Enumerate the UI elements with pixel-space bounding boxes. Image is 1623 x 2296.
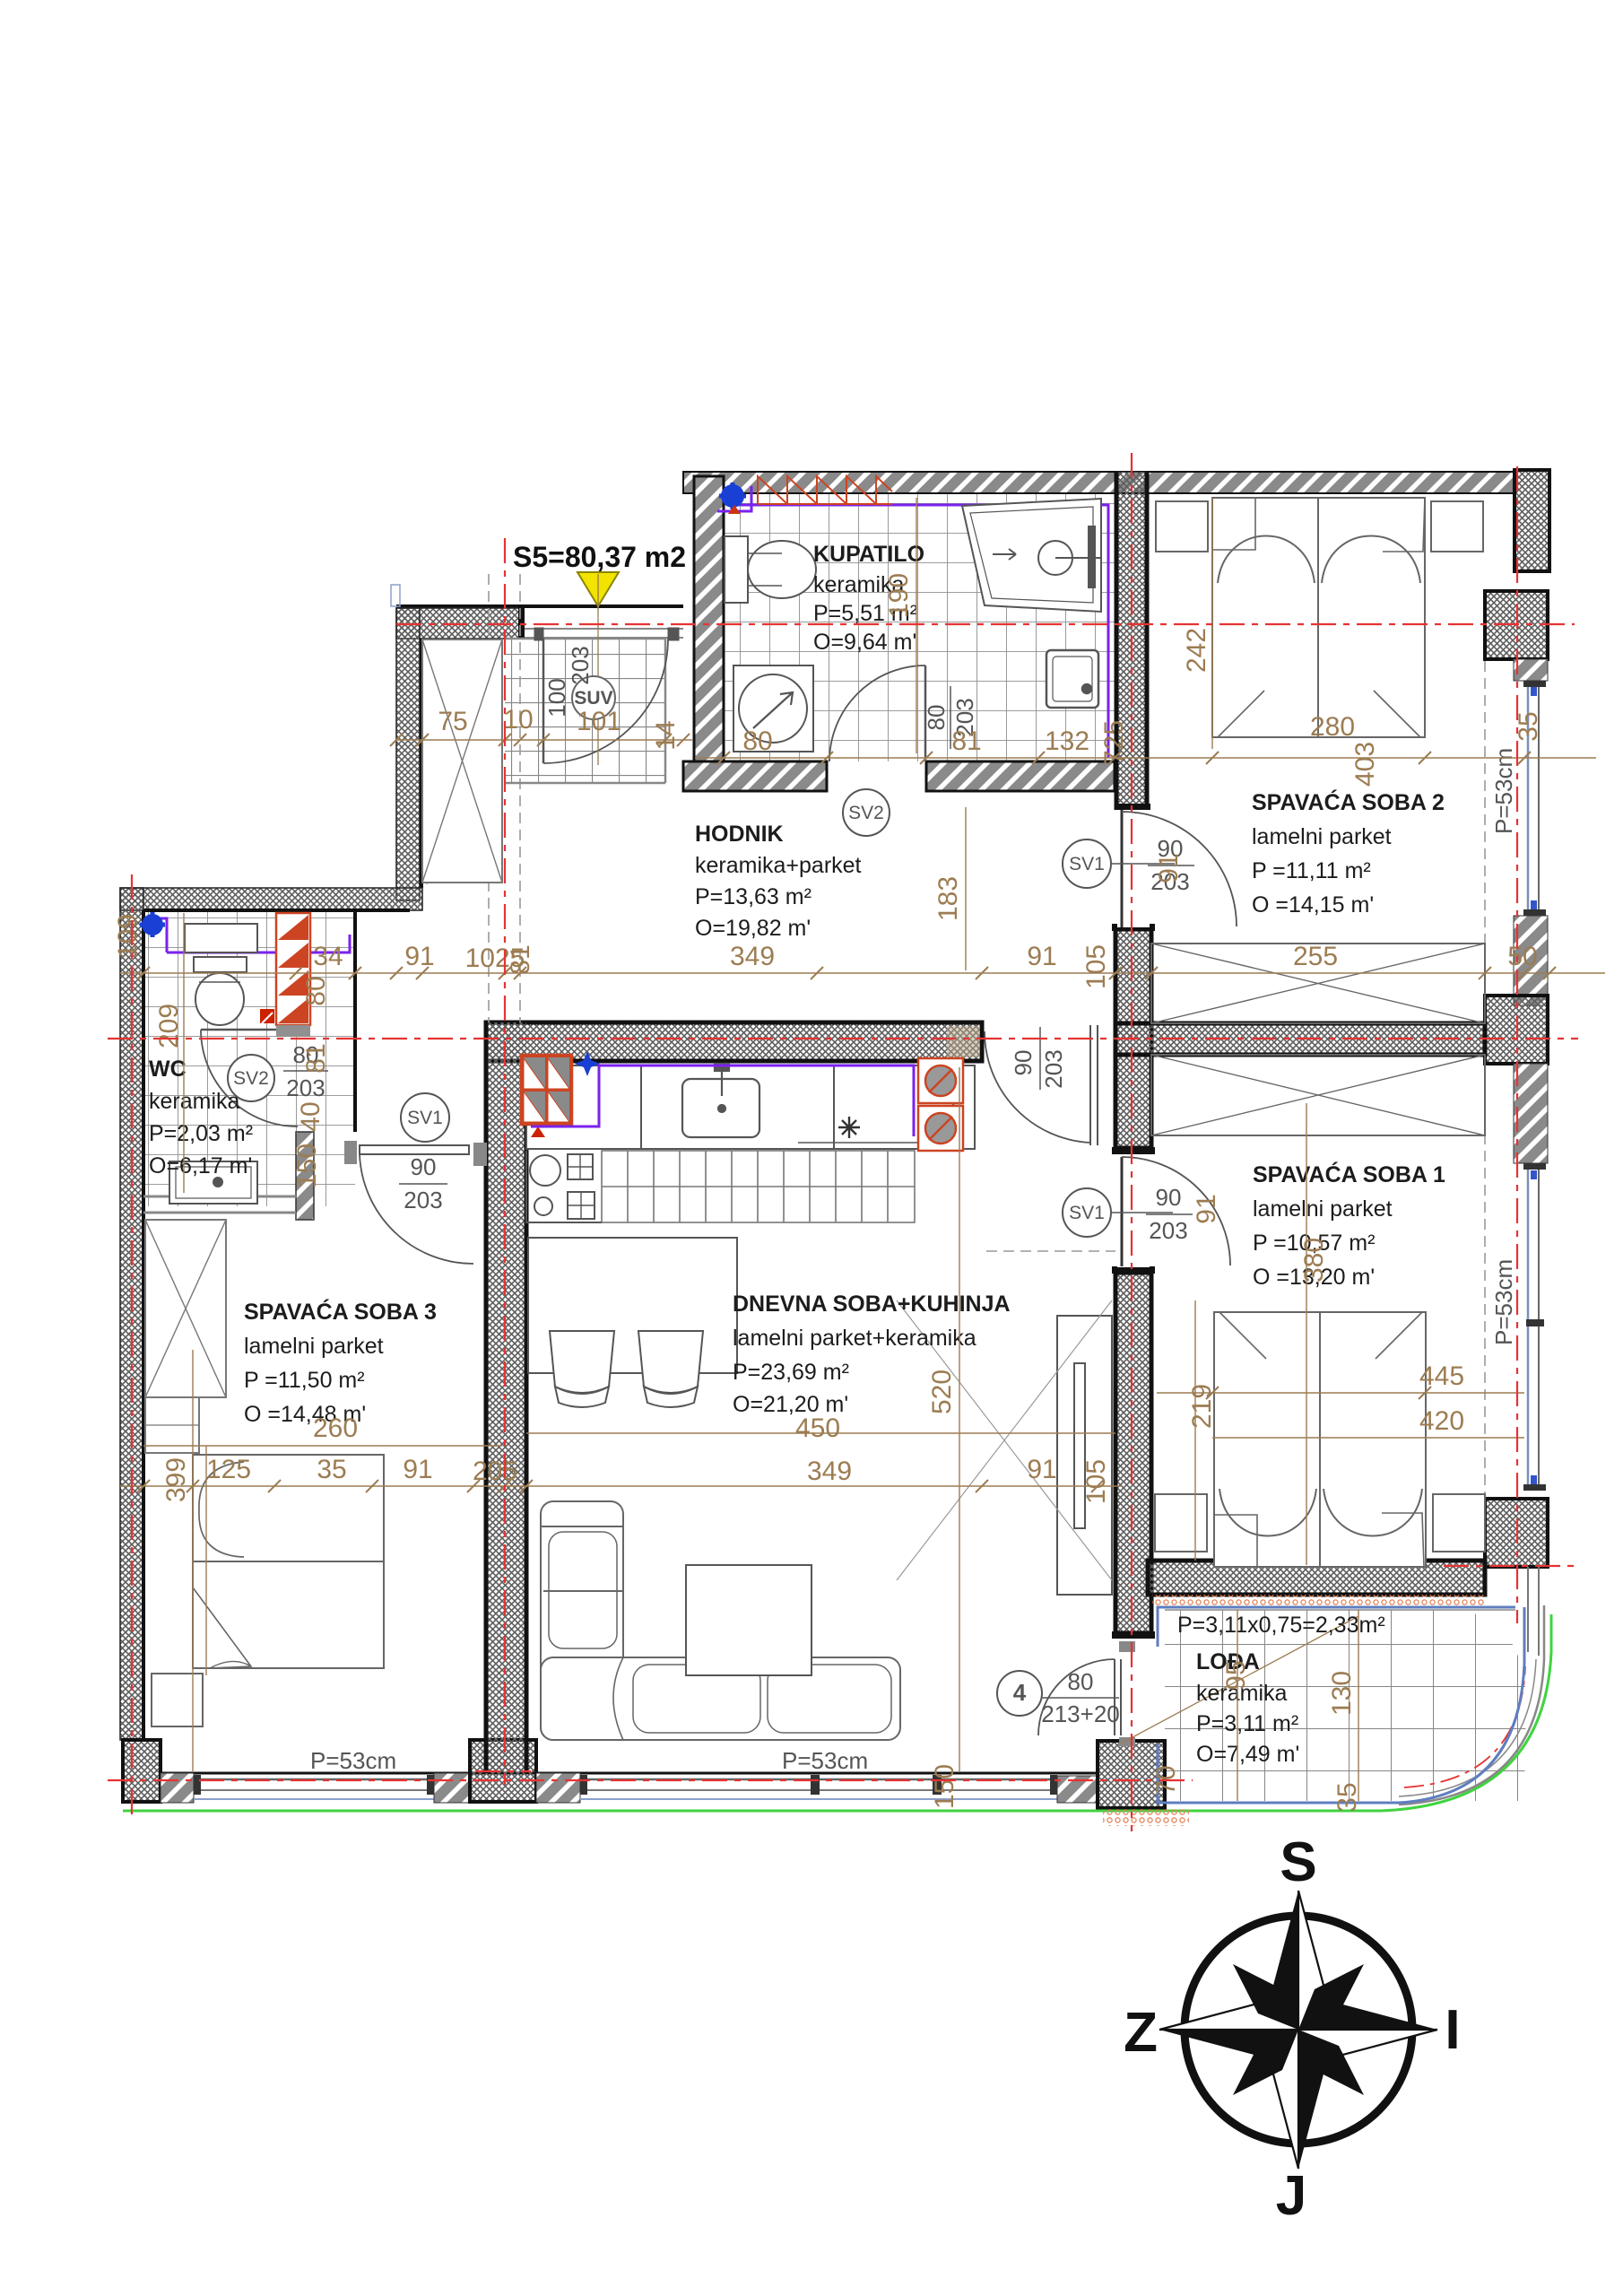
svg-text:14: 14 [651,720,681,750]
svg-text:183: 183 [933,876,963,921]
svg-text:213+20: 213+20 [1041,1700,1119,1727]
svg-text:P=13,63 m²: P=13,63 m² [695,884,811,909]
svg-text:J: J [1276,2165,1306,2227]
svg-text:105: 105 [1081,1459,1111,1504]
svg-text:150: 150 [292,1144,322,1188]
svg-text:O=19,82 m': O=19,82 m' [695,916,811,941]
svg-text:P=53cm: P=53cm [1490,1259,1517,1345]
svg-text:150: 150 [930,1764,959,1809]
svg-text:Z: Z [1124,2002,1158,2064]
svg-text:P=53cm: P=53cm [782,1747,868,1774]
svg-text:40: 40 [296,1101,325,1131]
svg-text:50: 50 [1507,942,1537,971]
svg-text:81: 81 [506,944,535,974]
svg-text:91: 91 [404,942,434,971]
svg-text:SV1: SV1 [1069,1203,1105,1223]
svg-text:SPAVAĆA SOBA 3: SPAVAĆA SOBA 3 [244,1298,437,1325]
svg-text:P=23,69 m²: P=23,69 m² [733,1360,849,1385]
svg-text:203: 203 [286,1074,325,1101]
svg-text:90: 90 [1156,1184,1182,1211]
svg-text:132: 132 [1045,726,1089,756]
svg-text:lamelni parket: lamelni parket [244,1334,384,1359]
svg-text:203: 203 [1040,1049,1067,1088]
svg-text:35: 35 [317,1455,346,1484]
svg-text:SV2: SV2 [848,803,884,823]
svg-text:DNEVNA SOBA+KUHINJA: DNEVNA SOBA+KUHINJA [733,1291,1011,1317]
svg-text:91: 91 [1027,1455,1056,1484]
svg-text:O=7,49 m': O=7,49 m' [1196,1742,1299,1767]
svg-text:130: 130 [1327,1671,1357,1716]
svg-text:105: 105 [1081,944,1111,989]
svg-text:349: 349 [730,942,775,971]
svg-text:520: 520 [927,1370,957,1414]
svg-text:90: 90 [1010,1050,1037,1076]
svg-text:101: 101 [577,707,621,736]
svg-text:203: 203 [404,1187,442,1213]
svg-text:380: 380 [1299,1238,1329,1283]
svg-text:S: S [1280,1831,1316,1893]
svg-text:95: 95 [1221,1660,1251,1690]
svg-text:80: 80 [742,726,772,756]
svg-text:450: 450 [795,1413,840,1443]
svg-text:81: 81 [951,726,981,756]
svg-text:34: 34 [313,942,343,971]
svg-text:203: 203 [1149,1217,1187,1244]
svg-text:219: 219 [1187,1384,1217,1429]
svg-text:SV1: SV1 [1069,854,1105,874]
svg-text:P =11,11 m²: P =11,11 m² [1252,858,1371,883]
svg-text:725: 725 [1099,720,1129,765]
svg-text:255: 255 [1293,942,1338,971]
svg-text:P=53cm: P=53cm [310,1747,396,1774]
svg-text:4: 4 [1013,1679,1027,1706]
svg-text:109: 109 [113,914,143,959]
svg-text:403: 403 [1350,742,1380,787]
svg-text:P =11,50 m²: P =11,50 m² [244,1368,365,1393]
svg-text:242: 242 [1182,628,1211,673]
svg-text:80: 80 [923,705,950,731]
svg-text:35: 35 [1332,1782,1362,1812]
svg-text:445: 445 [1419,1361,1464,1391]
svg-text:lamelni parket: lamelni parket [1252,824,1392,849]
svg-text:keramika: keramika [149,1089,240,1114]
svg-text:lamelni parket: lamelni parket [1253,1196,1393,1222]
svg-text:75: 75 [438,707,467,736]
svg-text:keramika+parket: keramika+parket [695,853,862,878]
svg-text:80: 80 [1068,1668,1094,1695]
svg-text:KUPATILO: KUPATILO [813,542,924,567]
svg-text:SUV: SUV [574,688,612,709]
svg-text:SPAVAĆA SOBA 1: SPAVAĆA SOBA 1 [1253,1161,1445,1187]
svg-text:91: 91 [1192,1194,1221,1223]
svg-text:260: 260 [313,1413,358,1443]
svg-text:SV1: SV1 [407,1108,443,1128]
svg-text:10: 10 [503,705,533,735]
svg-text:80: 80 [301,976,331,1005]
svg-text:81: 81 [301,1043,331,1073]
svg-text:lamelni parket+keramika: lamelni parket+keramika [733,1326,976,1351]
svg-text:S5=80,37 m2: S5=80,37 m2 [513,541,686,573]
svg-text:O =14,15 m': O =14,15 m' [1252,892,1374,918]
svg-text:125: 125 [206,1455,251,1484]
svg-text:90: 90 [411,1153,437,1180]
svg-text:349: 349 [807,1457,852,1486]
svg-text:HODNIK: HODNIK [695,822,784,847]
svg-text:190: 190 [884,573,914,618]
svg-text:P=3,11x0,75=2,33m²: P=3,11x0,75=2,33m² [1177,1613,1385,1638]
svg-text:91: 91 [1027,942,1056,971]
svg-text:O=9,64 m': O=9,64 m' [813,630,916,655]
svg-text:399: 399 [161,1457,191,1502]
svg-text:203: 203 [567,646,594,684]
svg-text:WC: WC [149,1057,187,1082]
svg-text:SV2: SV2 [233,1068,269,1089]
svg-text:O=6,17 m': O=6,17 m' [149,1153,252,1178]
svg-text:280: 280 [1310,712,1355,742]
svg-text:I: I [1445,1999,1460,2061]
svg-text:P=53cm: P=53cm [1490,748,1517,834]
svg-text:205: 205 [473,1457,517,1486]
svg-text:P=3,11 m²: P=3,11 m² [1196,1711,1298,1736]
svg-text:P=2,03 m²: P=2,03 m² [149,1121,253,1146]
svg-text:91: 91 [1154,853,1184,883]
svg-text:SPAVAĆA SOBA 2: SPAVAĆA SOBA 2 [1252,788,1445,815]
svg-text:91: 91 [403,1455,432,1484]
svg-text:420: 420 [1419,1406,1464,1436]
svg-text:209: 209 [154,1004,184,1048]
